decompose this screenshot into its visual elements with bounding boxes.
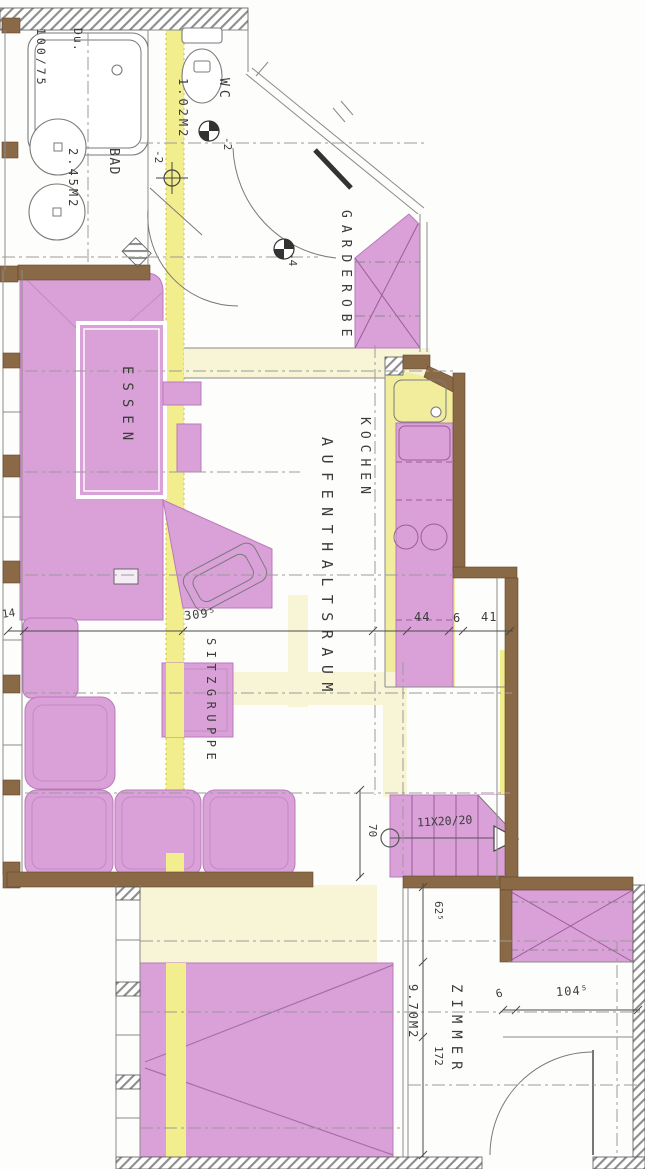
floor-plan: Du. 100/75 WC 1.02M2 BAD 2.45M2 GARDEROB… bbox=[0, 0, 645, 1169]
dim-label-41: 41 bbox=[481, 611, 497, 624]
dim-label-44: 44 bbox=[414, 611, 430, 624]
sofa-bench bbox=[23, 618, 78, 698]
dim-label-14: 14 bbox=[1, 607, 16, 620]
dim-label-62: 62⁵ bbox=[432, 901, 444, 921]
toilet-cistern bbox=[182, 28, 222, 43]
sofa-corner bbox=[25, 697, 115, 789]
level-label-wc: -2 bbox=[221, 137, 233, 150]
room-label-kitchen: KOCHEN bbox=[357, 417, 371, 500]
stair-steps-label: 11X20/20 bbox=[417, 814, 473, 829]
room-label-bath: BAD 2.45M2 bbox=[53, 148, 148, 209]
room-label-living: AUFENTHALTSRAUM bbox=[318, 437, 334, 700]
dim-label-104: 104⁵ bbox=[556, 984, 590, 999]
room-label-garderobe: GARDEROBE bbox=[338, 210, 352, 343]
kitchen-appliances bbox=[396, 423, 453, 687]
level-label-entry: -4 bbox=[286, 253, 298, 266]
room-label-wc: WC 1.02M2 bbox=[163, 78, 258, 139]
room-label-shower: Du. 100/75 bbox=[23, 28, 108, 88]
chair bbox=[163, 382, 201, 405]
door-swing-arc bbox=[490, 1052, 593, 1155]
sofa-seat bbox=[115, 790, 201, 876]
sofa-seat bbox=[25, 790, 113, 876]
room-label-dining: ESSEN bbox=[119, 366, 134, 448]
dim-label-6: 6 bbox=[453, 612, 460, 625]
sofa-seat bbox=[203, 790, 295, 876]
dim-label-70: 70 bbox=[366, 824, 378, 837]
chair bbox=[177, 424, 201, 472]
level-label-hall: -2 bbox=[152, 150, 164, 163]
dim-label-172: 172 bbox=[432, 1046, 444, 1066]
room-label-seating: SITZGRUPPE bbox=[204, 638, 217, 765]
